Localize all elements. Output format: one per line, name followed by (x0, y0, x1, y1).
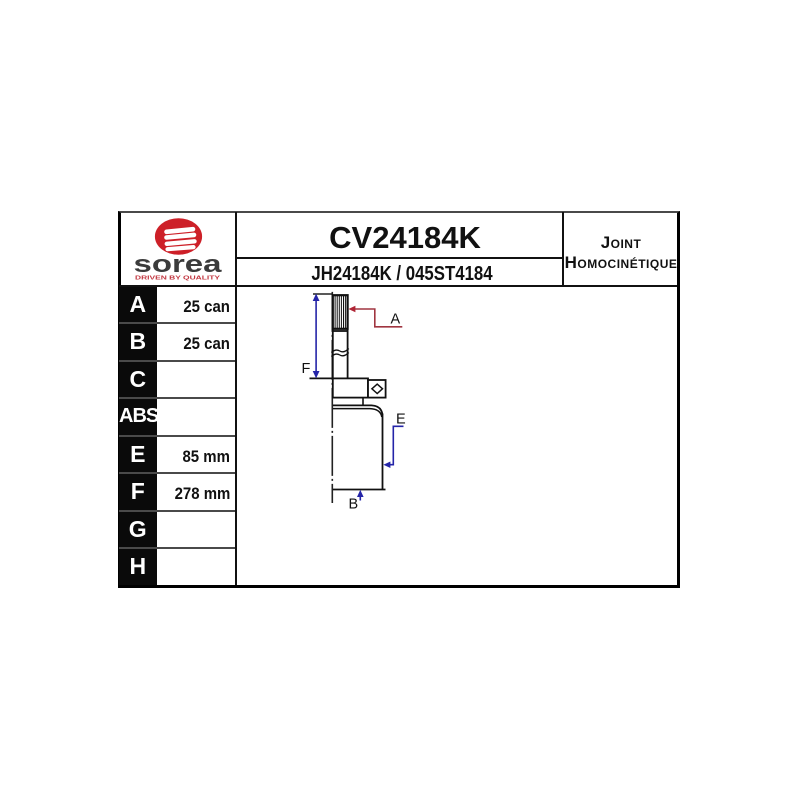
svg-text:B: B (349, 497, 359, 513)
svg-text:A: A (391, 312, 401, 328)
svg-text:F: F (302, 361, 311, 377)
svg-text:E: E (396, 411, 406, 427)
